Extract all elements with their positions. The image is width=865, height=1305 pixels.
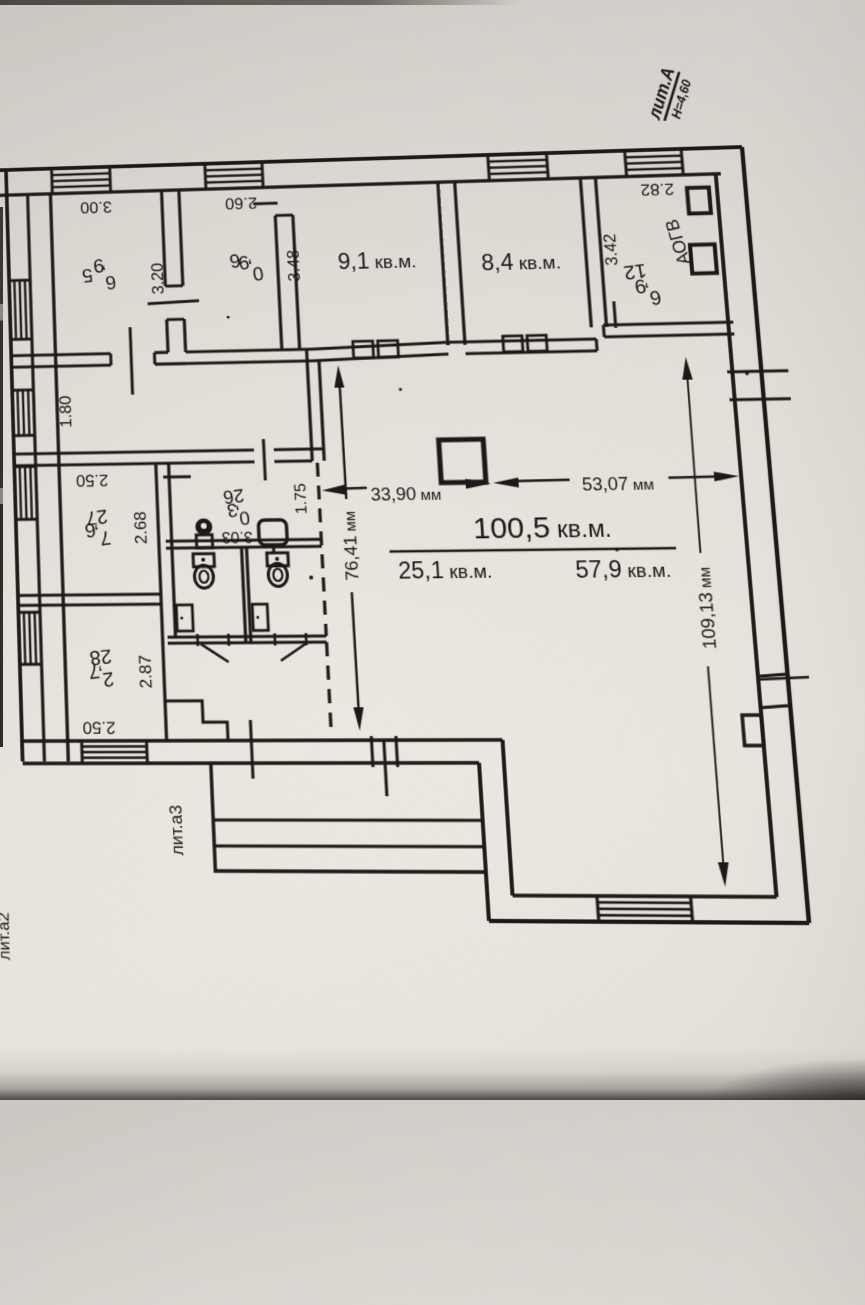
svg-text:25,1 кв.м.: 25,1 кв.м. (398, 557, 493, 584)
svg-text:109,13 мм: 109,13 мм (693, 567, 721, 649)
svg-text:1.80: 1.80 (57, 395, 76, 428)
svg-text:0: 0 (251, 263, 265, 286)
svg-text:2.60: 2.60 (224, 194, 257, 212)
svg-text:53,07 мм: 53,07 мм (581, 474, 654, 496)
svg-text:7: 7 (98, 527, 112, 550)
svg-text:5: 5 (81, 265, 95, 288)
svg-text:0: 0 (238, 507, 252, 529)
svg-text:лит.а2: лит.а2 (0, 912, 14, 960)
svg-text:3.00: 3.00 (80, 198, 112, 216)
svg-text:8,4 кв.м.: 8,4 кв.м. (481, 249, 562, 276)
svg-text:2.82: 2.82 (640, 179, 675, 198)
svg-text:33,90 мм: 33,90 мм (370, 484, 442, 505)
svg-text:57,9 кв.м.: 57,9 кв.м. (575, 556, 672, 583)
svg-text:3.48: 3.48 (285, 249, 305, 281)
svg-text:2.50: 2.50 (82, 718, 116, 737)
svg-text:100,5 кв.м.: 100,5 кв.м. (472, 510, 613, 545)
svg-text:9,1 кв.м.: 9,1 кв.м. (337, 248, 417, 275)
svg-text:2: 2 (101, 668, 115, 692)
svg-text:76,41 мм: 76,41 мм (339, 511, 363, 581)
svg-text:3.20: 3.20 (149, 262, 168, 294)
svg-text:2.87: 2.87 (137, 655, 156, 689)
svg-text:1.75: 1.75 (292, 483, 311, 514)
svg-text:2.50: 2.50 (76, 471, 109, 489)
svg-text:3.42: 3.42 (601, 233, 622, 266)
svg-text:3.03: 3.03 (221, 528, 253, 545)
svg-text:лит.а3: лит.а3 (167, 805, 187, 856)
svg-text:6: 6 (648, 286, 663, 309)
svg-text:6: 6 (104, 272, 118, 295)
svg-text:2.68: 2.68 (132, 511, 151, 544)
